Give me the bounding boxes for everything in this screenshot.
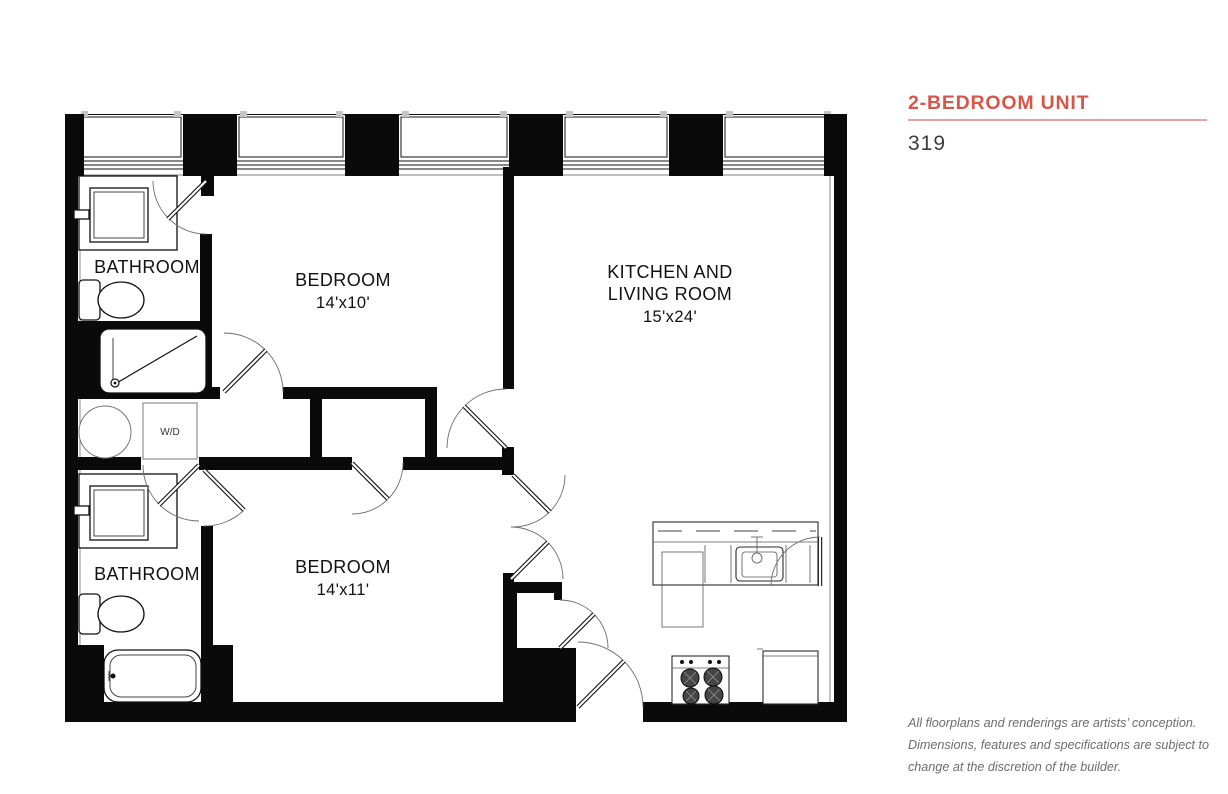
wall-pillar — [183, 114, 237, 176]
laundry-label: W/D — [160, 427, 179, 438]
door-bedroom-1 — [224, 333, 283, 392]
room-bathroom-2: BATHROOM — [94, 564, 200, 584]
window — [565, 117, 667, 157]
room-dims-kitchen: 15'x24' — [643, 308, 697, 326]
room-label-kitchen-line2: LIVING ROOM — [608, 284, 732, 304]
shower — [100, 329, 206, 393]
disclaimer-line-1: All floorplans and renderings are artist… — [908, 712, 1228, 734]
toilet-1 — [79, 280, 144, 320]
room-label-bathroom-1: BATHROOM — [94, 257, 200, 277]
wall-bottom — [65, 702, 576, 722]
wall-right — [834, 114, 847, 722]
wall-pillar — [669, 114, 723, 176]
wall-left — [65, 114, 78, 722]
window-wall — [65, 111, 847, 176]
door-entry-closet — [560, 600, 608, 648]
doors — [143, 181, 820, 707]
floorplan-page: W/D — [0, 0, 1228, 794]
room-label-bathroom-2: BATHROOM — [94, 564, 200, 584]
door-bedroom-1-living — [447, 389, 506, 448]
toilet-2 — [79, 594, 144, 634]
stove — [672, 656, 729, 704]
window — [239, 117, 343, 157]
room-bedroom-1: BEDROOM 14'x10' — [295, 270, 391, 312]
window — [80, 117, 181, 157]
door-bedroom-2 — [352, 463, 403, 514]
wall-pillar — [824, 114, 834, 176]
room-label-bedroom-1: BEDROOM — [295, 270, 391, 290]
floorplan-drawing: W/D — [0, 0, 870, 794]
room-bathroom-1: BATHROOM — [94, 257, 200, 277]
title-underline — [908, 119, 1207, 121]
unit-number: 319 — [908, 132, 946, 156]
room-bedroom-2: BEDROOM 14'x11' — [295, 557, 391, 599]
window — [401, 117, 507, 157]
wall-pillar — [345, 114, 399, 176]
kitchen-cabinet — [757, 649, 818, 704]
page-title: 2-BEDROOM UNIT — [908, 92, 1218, 115]
wall-pillar — [509, 114, 563, 176]
door-entry — [578, 642, 643, 707]
washer-dryer: W/D — [143, 403, 197, 459]
vanity-sink-1 — [74, 176, 177, 250]
door-hall-lower — [511, 527, 563, 579]
disclaimer-line-3: change at the discretion of the builder. — [908, 756, 1228, 778]
room-dims-bedroom-1: 14'x10' — [316, 294, 370, 312]
vanity-sink-2 — [74, 474, 177, 548]
disclaimer-line-2: Dimensions, features and specifications … — [908, 734, 1228, 756]
room-label-bedroom-2: BEDROOM — [295, 557, 391, 577]
wall-bottom — [643, 702, 847, 722]
room-kitchen-living: KITCHEN AND LIVING ROOM 15'x24' — [607, 262, 732, 326]
door-bedroom-2-west — [204, 470, 244, 526]
window — [725, 117, 831, 157]
water-heater — [79, 406, 131, 458]
room-label-kitchen-line1: KITCHEN AND — [607, 262, 732, 282]
fixtures: W/D — [74, 176, 818, 704]
disclaimer-text: All floorplans and renderings are artist… — [908, 712, 1228, 778]
bathtub — [104, 650, 201, 702]
door-hall-upper — [513, 475, 565, 527]
room-dims-bedroom-2: 14'x11' — [317, 581, 370, 599]
